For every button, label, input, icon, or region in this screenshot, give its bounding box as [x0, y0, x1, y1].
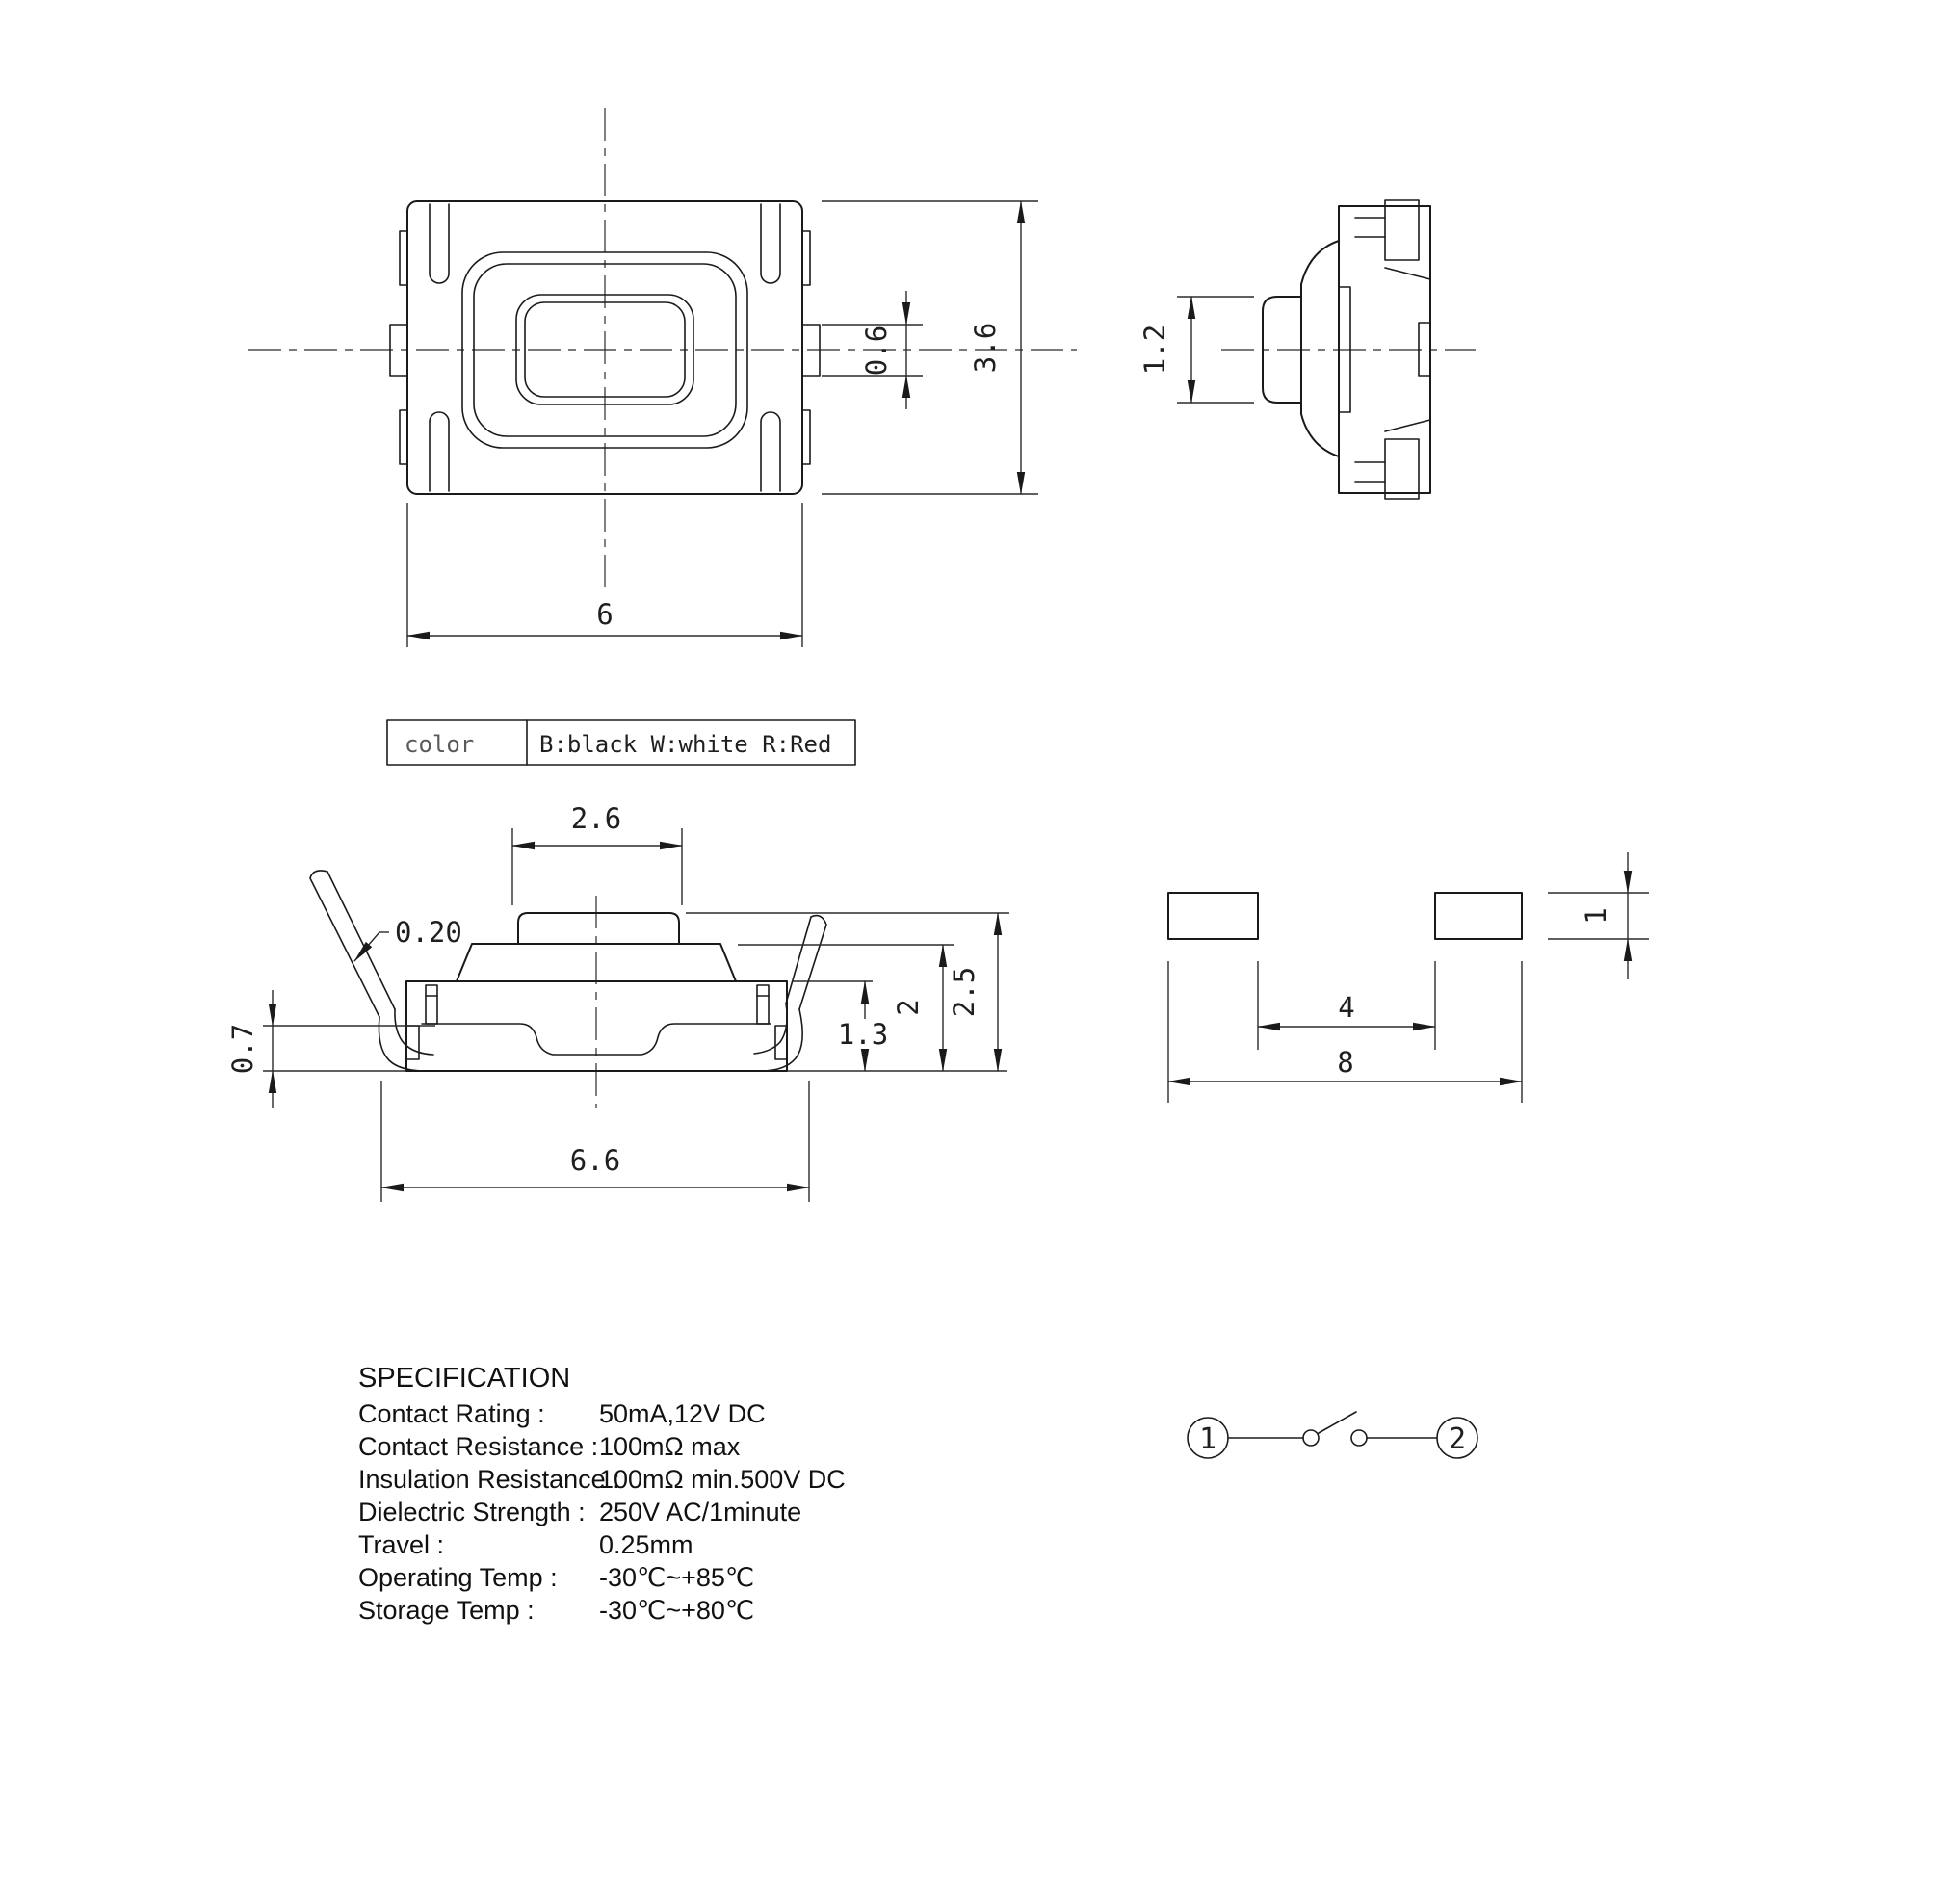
spec-label-2: Insulation Resistance :: [358, 1465, 620, 1494]
spec-label-0: Contact Rating :: [358, 1399, 545, 1428]
dim-pad-height: 1: [1580, 907, 1612, 924]
clip-edge-left-bottom: [400, 410, 407, 464]
lead-right-strip: [786, 916, 826, 1009]
corner-clip-bottom-left: [430, 412, 449, 491]
section-view: 2.6 0.20 0.7 6.6 1.3 2 2.5: [226, 802, 1009, 1202]
clip-edge-left-top: [400, 231, 407, 285]
spec-value-0: 50mA,12V DC: [599, 1399, 766, 1428]
contact-left: [1303, 1430, 1319, 1446]
spec-value-5: -30℃~+85℃: [599, 1563, 754, 1592]
color-table-value: B:black W:white R:Red: [539, 731, 831, 758]
switch-blade: [1319, 1412, 1356, 1433]
dim-cap-height: 2: [892, 999, 925, 1015]
spec-label-6: Storage Temp :: [358, 1596, 535, 1625]
color-table-label: color: [405, 731, 474, 758]
dim-top-width: 6: [596, 598, 613, 631]
section-clip-left: [426, 985, 437, 1024]
spec-label-3: Dielectric Strength :: [358, 1498, 586, 1526]
side-cap-profile: [1301, 241, 1339, 456]
dim-ext-span: [381, 1081, 809, 1202]
corner-clip-bottom-right: [761, 412, 780, 491]
dim-pad-span: 8: [1337, 1046, 1353, 1079]
dim-tab-height: 0.6: [860, 326, 893, 376]
dim-ext-height: [822, 201, 1038, 494]
dim-pad-gap: 4: [1338, 991, 1354, 1024]
spec-label-1: Contact Resistance :: [358, 1432, 598, 1461]
clip-edge-right-bottom: [802, 410, 810, 464]
pad-right: [1435, 893, 1522, 939]
switch-engineering-drawing: 6 0.6 3.6 1.2 color B:black W:white R:Re…: [0, 0, 1935, 1904]
terminal-2-label: 2: [1449, 1422, 1466, 1456]
color-table: color B:black W:white R:Red: [387, 720, 855, 765]
dim-total-height: 2.5: [948, 967, 981, 1017]
side-clip-top: [1385, 200, 1419, 260]
pad-left: [1168, 893, 1258, 939]
dim-button-width: 2.6: [571, 802, 621, 835]
section-clip-right: [757, 985, 769, 1024]
clip-edge-right-top: [802, 231, 810, 285]
spec-label-4: Travel :: [358, 1530, 444, 1559]
spec-value-1: 100mΩ max: [599, 1432, 741, 1461]
top-view: 6 0.6 3.6: [248, 108, 1077, 647]
spec-value-2: 100mΩ min.500V DC: [599, 1465, 846, 1494]
spec-value-6: -30℃~+80℃: [599, 1596, 754, 1625]
dim-side-button-width: 1.2: [1138, 325, 1171, 375]
drawing-sheet: 6 0.6 3.6 1.2 color B:black W:white R:Re…: [0, 0, 1935, 1904]
circuit-schematic: 1 2: [1188, 1412, 1477, 1458]
spec-title: SPECIFICATION: [358, 1363, 570, 1394]
dim-body-height: 1.3: [838, 1018, 888, 1051]
spec-value-4: 0.25mm: [599, 1530, 693, 1559]
section-button: [518, 913, 679, 944]
dim-lead-span: 6.6: [570, 1144, 620, 1177]
spec-label-5: Operating Temp :: [358, 1563, 558, 1592]
land-pattern: 1 4 8: [1168, 852, 1649, 1103]
terminal-1-label: 1: [1199, 1422, 1216, 1456]
dim-ext-button: [512, 828, 682, 905]
lead-left-strip: [310, 871, 395, 1017]
side-clip-bottom: [1385, 439, 1419, 499]
dim-top-height: 3.6: [969, 323, 1002, 373]
contact-right: [1351, 1430, 1367, 1446]
specification-block: SPECIFICATION Contact Rating : 50mA,12V …: [358, 1363, 846, 1625]
corner-clip-top-left: [430, 204, 449, 283]
leader-line-arrow: [354, 932, 379, 961]
spec-value-3: 250V AC/1minute: [599, 1498, 801, 1526]
dim-foot-height: 0.7: [226, 1024, 259, 1074]
side-view: 1.2: [1138, 200, 1476, 499]
dim-lead-thickness: 0.20: [395, 916, 462, 949]
lead-right-foot: [754, 1004, 802, 1071]
corner-clip-top-right: [761, 204, 780, 283]
